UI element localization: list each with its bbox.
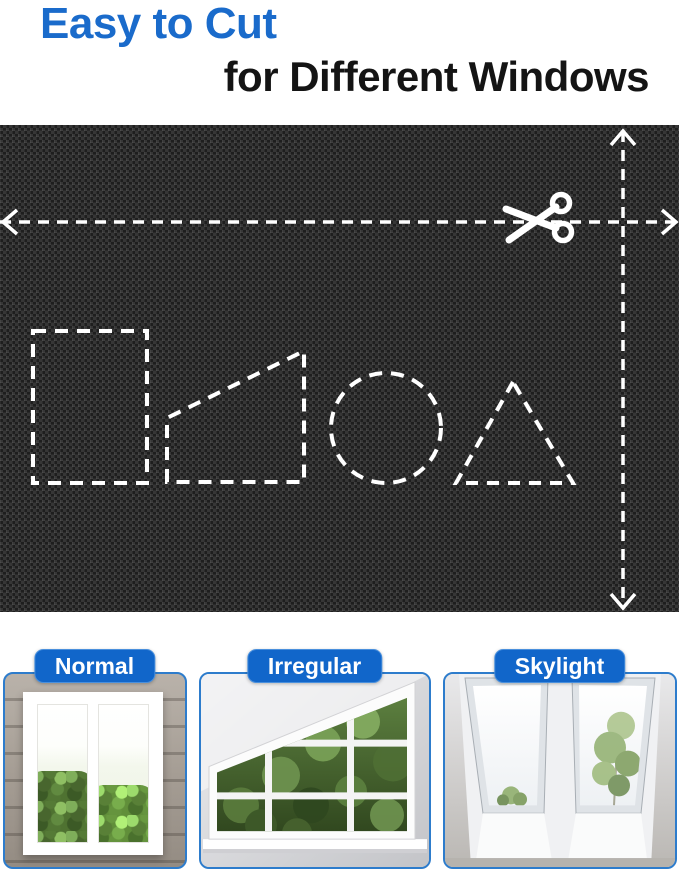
header: Easy to Cut for Different Windows (0, 0, 679, 125)
panel-irregular: Irregular (199, 649, 431, 870)
scissors-icon-handle (553, 195, 570, 212)
blackout-fabric-swatch (0, 125, 679, 612)
floor-strip (445, 858, 675, 867)
panel-label-normal: Normal (34, 649, 155, 683)
title-line-1: Easy to Cut (40, 2, 679, 46)
trapezoid-cutout (167, 351, 304, 482)
cut-guides-overlay (0, 125, 679, 612)
foliage (37, 771, 88, 843)
panel-label-irregular: Irregular (247, 649, 382, 683)
product-infographic: Easy to Cut for Different Windows Normal (0, 0, 679, 874)
irregular-window-photo (199, 672, 431, 869)
panel-normal: Normal (3, 649, 187, 870)
window-pane-left (37, 704, 88, 843)
panel-skylight: Skylight (443, 649, 677, 870)
triangle-cutout (456, 382, 573, 483)
skylight-window-illustration (445, 674, 675, 867)
title-line-2: for Different Windows (0, 56, 649, 98)
normal-window-photo (3, 672, 187, 869)
skylight-window-photo (443, 672, 677, 869)
foliage (98, 785, 149, 843)
circle-cutout (331, 373, 441, 483)
normal-window-frame (23, 692, 163, 855)
window-type-panels: Normal Irregular (0, 649, 679, 870)
rectangle-cutout (33, 331, 147, 483)
window-pane-right (98, 704, 149, 843)
panel-label-skylight: Skylight (494, 649, 625, 683)
irregular-window-illustration (201, 674, 429, 867)
scissors-icon-handle (555, 224, 572, 241)
